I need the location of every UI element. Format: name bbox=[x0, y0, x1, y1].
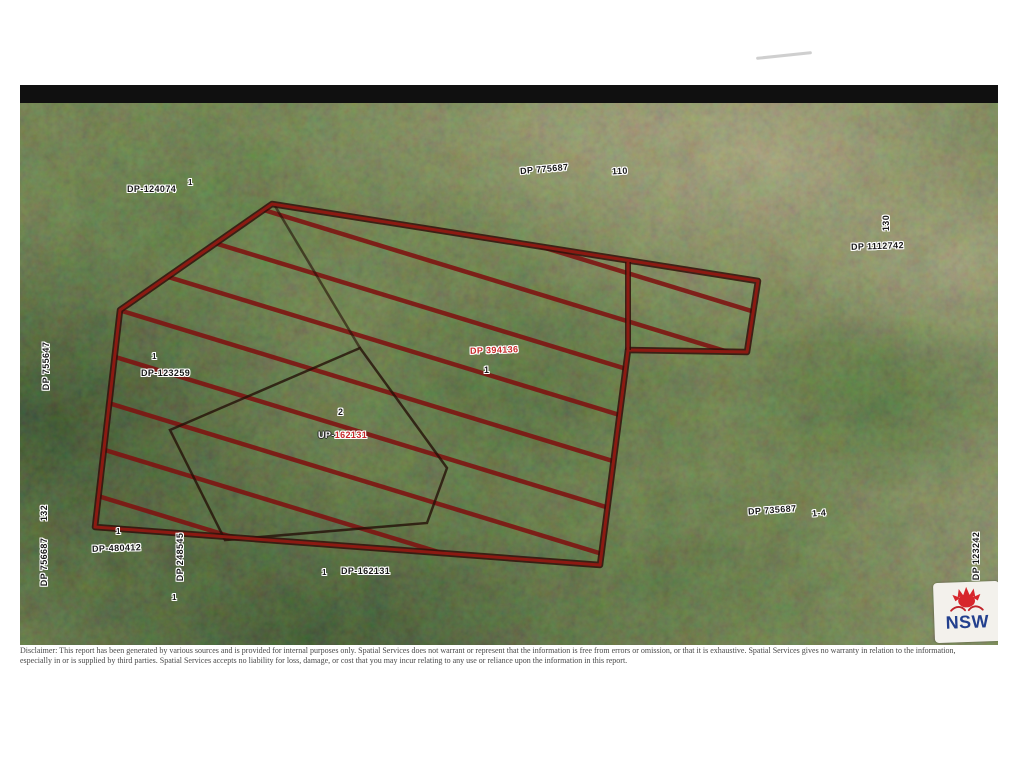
parcel-label-dp394136: DP 394136 bbox=[470, 344, 519, 356]
parcel-label-dp480412: DP-480412 bbox=[92, 542, 141, 554]
lot-number-dp123259: 1 bbox=[152, 352, 157, 362]
parcel-label-dp248545: DP 248545 bbox=[175, 533, 185, 581]
lot-number-dp735687: 1-4 bbox=[812, 508, 827, 519]
parcel-label-dp123242: DP 123242 bbox=[971, 532, 981, 580]
disclaimer-text: Disclaimer: This report has been generat… bbox=[20, 646, 988, 665]
parcel-label-dp124074: DP-124074 bbox=[127, 184, 176, 194]
property-report-page: DP-124074 1 DP 775687 110 DP 1112742 130… bbox=[0, 0, 1024, 768]
lot-number-dp1112742: 130 bbox=[881, 215, 891, 231]
cadastral-overlay bbox=[20, 85, 998, 645]
parcel-label-up162131-prefix: UP- bbox=[318, 430, 335, 440]
lot-number-dp480412: 1 bbox=[116, 527, 121, 537]
lot-number-dp775687: 110 bbox=[612, 166, 628, 177]
lot-number-dp394136: 1 bbox=[484, 365, 489, 375]
parcel-label-dp756687: DP 756687 bbox=[39, 538, 49, 586]
scan-artifact bbox=[756, 51, 812, 60]
parcel-label-dp755647: DP 755647 bbox=[41, 342, 51, 390]
nsw-logo-text: NSW bbox=[945, 612, 989, 632]
lot-number-dp248545: 1 bbox=[172, 593, 177, 603]
parcel-label-up162131: UP-162131 bbox=[318, 430, 367, 440]
nsw-government-logo: NSW bbox=[933, 581, 998, 643]
lot-number-dp756687: 132 bbox=[39, 505, 49, 521]
lot-number-up162131: 2 bbox=[338, 407, 343, 417]
lot-number-dp162131: 1 bbox=[322, 568, 327, 578]
parcel-label-up162131-number: 162131 bbox=[335, 430, 367, 440]
parcel-label-dp162131: DP-162131 bbox=[341, 566, 390, 576]
lot-number-dp124074: 1 bbox=[188, 178, 193, 188]
waratah-icon bbox=[946, 584, 987, 613]
parcel-label-dp1112742: DP 1112742 bbox=[851, 240, 904, 252]
parcel-label-dp123259: DP-123259 bbox=[141, 368, 190, 378]
aerial-map: DP-124074 1 DP 775687 110 DP 1112742 130… bbox=[20, 85, 998, 645]
